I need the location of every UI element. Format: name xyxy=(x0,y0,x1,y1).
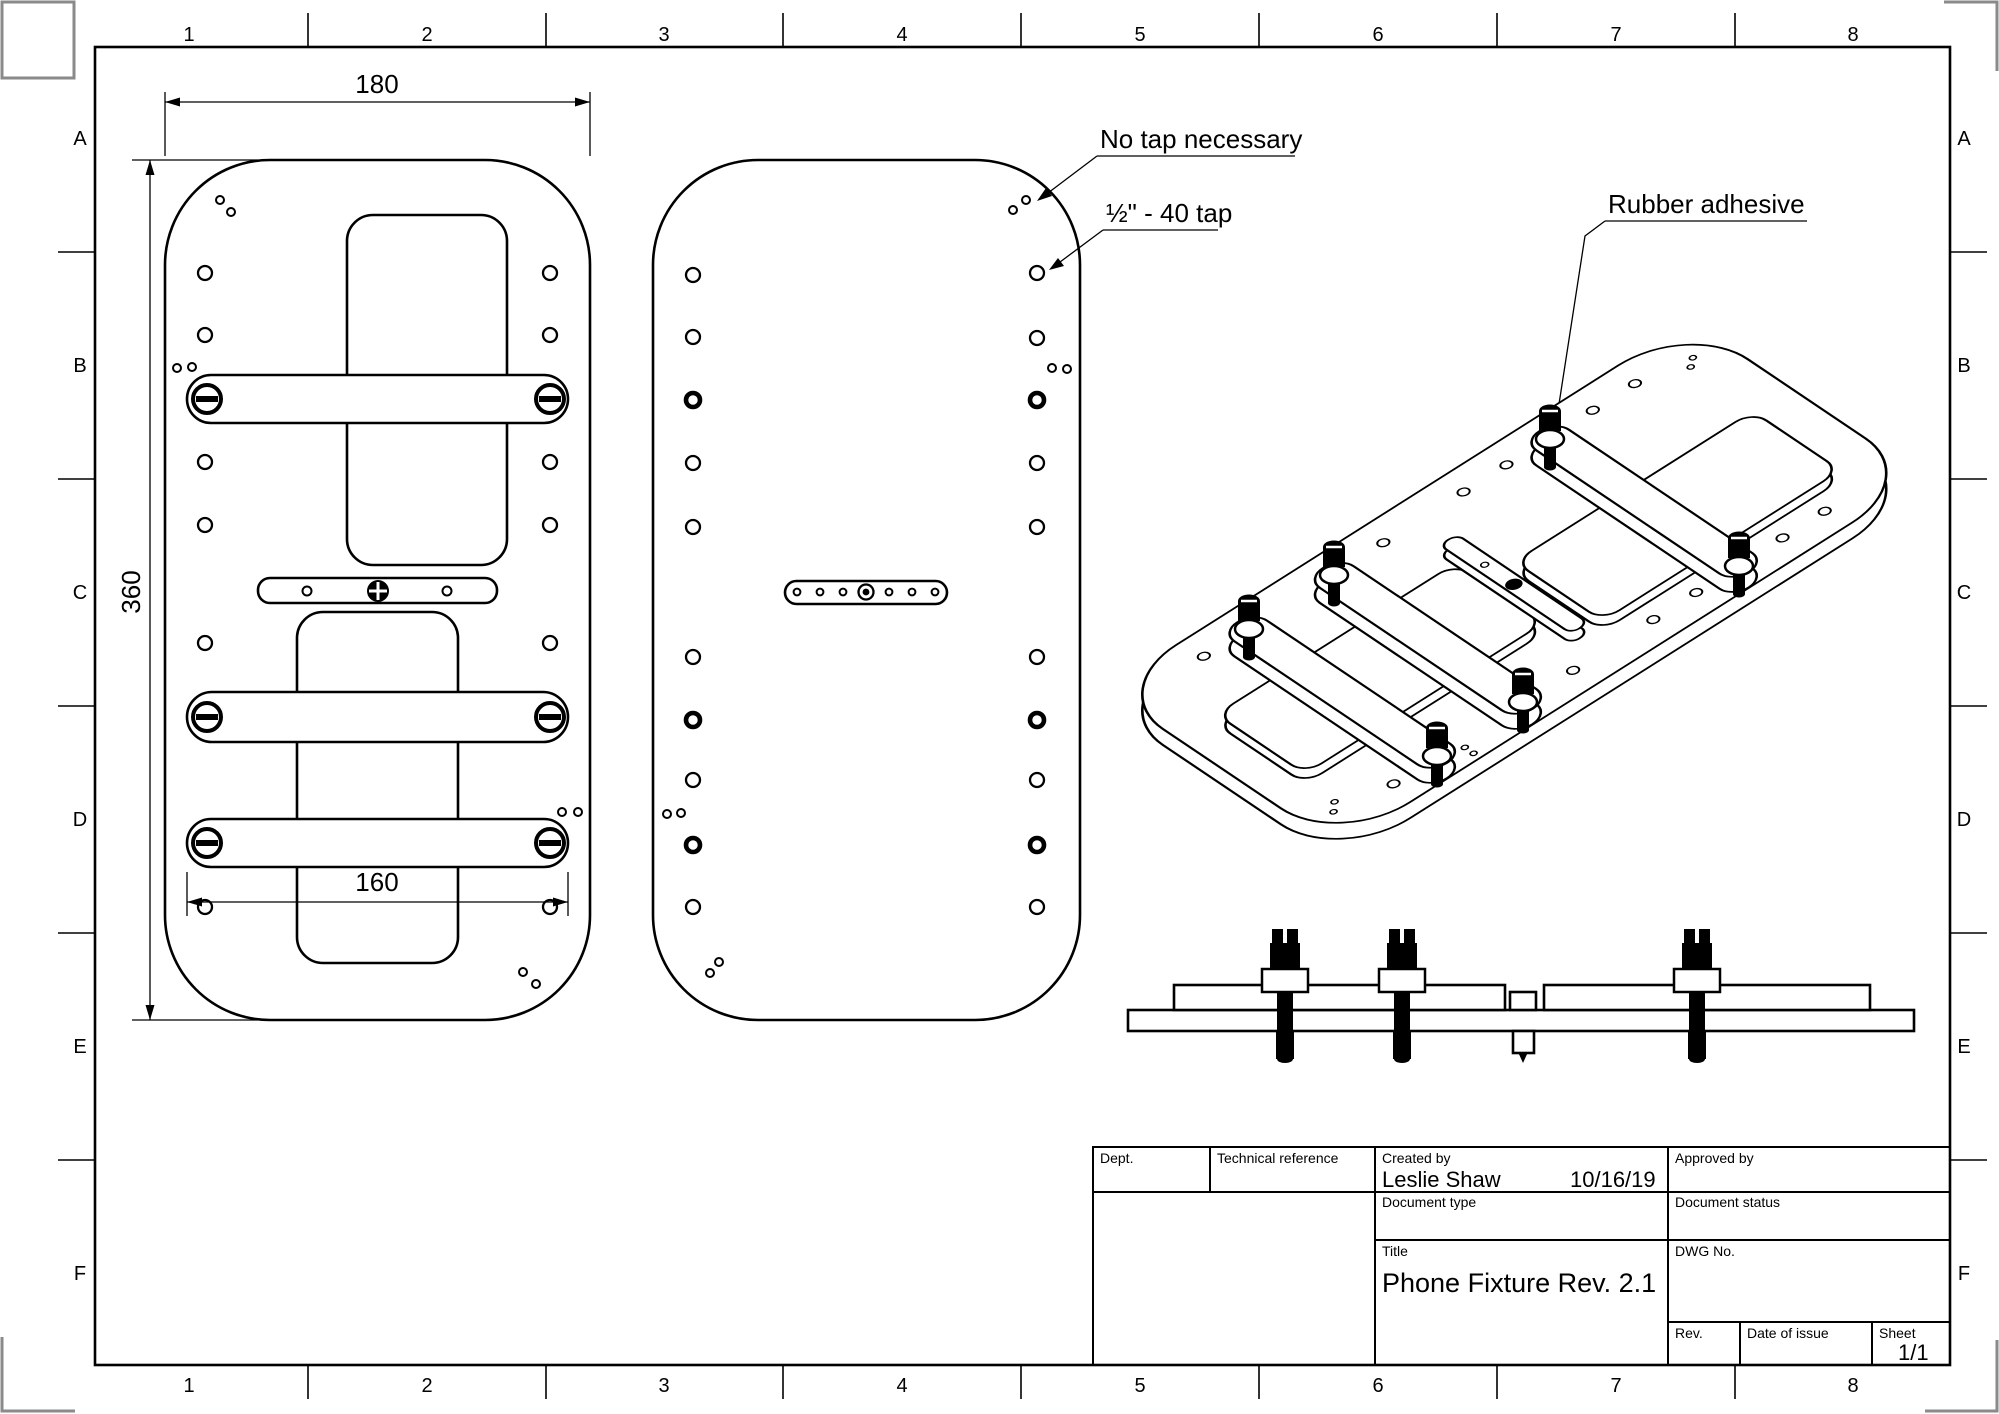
dim-plate-width: 180 xyxy=(355,69,398,99)
side-center-pin xyxy=(1513,1031,1534,1053)
tap-label: ½" - 40 tap xyxy=(1106,198,1232,228)
rev-label: Rev. xyxy=(1675,1325,1703,1341)
col-label: 3 xyxy=(658,24,669,46)
col-label: 4 xyxy=(896,1375,907,1397)
col-label: 7 xyxy=(1610,1375,1621,1397)
row-label: D xyxy=(73,809,87,831)
col-label: 6 xyxy=(1372,24,1383,46)
created-by-name: Leslie Shaw xyxy=(1382,1167,1501,1192)
document-status-label: Document status xyxy=(1675,1194,1780,1210)
date-of-issue-label: Date of issue xyxy=(1747,1325,1829,1341)
dwg-no-label: DWG No. xyxy=(1675,1243,1735,1259)
row-label: C xyxy=(73,582,87,604)
dept-label: Dept. xyxy=(1100,1150,1133,1166)
col-label: 8 xyxy=(1847,1375,1858,1397)
col-label: 2 xyxy=(421,1375,432,1397)
title-label: Title xyxy=(1382,1243,1408,1259)
row-label: D xyxy=(1957,809,1971,831)
no-tap-label: No tap necessary xyxy=(1100,124,1302,154)
col-label: 8 xyxy=(1847,24,1858,46)
row-label: F xyxy=(74,1263,86,1285)
col-label: 5 xyxy=(1134,1375,1145,1397)
col-label: 1 xyxy=(183,24,194,46)
sheet-value: 1/1 xyxy=(1898,1340,1929,1365)
dim-plate-height: 360 xyxy=(116,570,146,613)
front-view: 180 360 160 xyxy=(116,69,590,1020)
col-label: 6 xyxy=(1372,1375,1383,1397)
drawing-title: Phone Fixture Rev. 2.1 xyxy=(1382,1268,1656,1298)
col-label: 5 xyxy=(1134,24,1145,46)
row-label: A xyxy=(1957,128,1971,150)
side-left-bar xyxy=(1174,985,1505,1010)
side-center-block xyxy=(1510,992,1536,1010)
side-base-plate xyxy=(1128,1010,1914,1031)
center-bar xyxy=(258,578,497,603)
document-type-label: Document type xyxy=(1382,1194,1476,1210)
row-label: B xyxy=(1957,355,1970,377)
sheet-label: Sheet xyxy=(1879,1325,1916,1341)
approved-by-label: Approved by xyxy=(1675,1150,1754,1166)
row-label: E xyxy=(73,1036,86,1058)
back-view xyxy=(653,160,1080,1020)
row-label: C xyxy=(1957,582,1971,604)
row-label: A xyxy=(73,128,87,150)
row-label: F xyxy=(1958,1263,1970,1285)
col-label: 1 xyxy=(183,1375,194,1397)
technical-reference-label: Technical reference xyxy=(1217,1150,1339,1166)
row-label: B xyxy=(73,355,86,377)
col-label: 2 xyxy=(421,24,432,46)
created-by-label: Created by xyxy=(1382,1150,1450,1166)
rubber-adhesive-label: Rubber adhesive xyxy=(1608,189,1805,219)
created-date: 10/16/19 xyxy=(1570,1167,1656,1192)
row-label: E xyxy=(1957,1036,1970,1058)
dim-bar-length: 160 xyxy=(355,867,398,897)
col-label: 3 xyxy=(658,1375,669,1397)
col-label: 4 xyxy=(896,24,907,46)
drawing-sheet: 1 2 3 4 5 6 7 8 1 2 3 4 5 6 7 8 A B C D … xyxy=(0,0,1999,1414)
col-label: 7 xyxy=(1610,24,1621,46)
